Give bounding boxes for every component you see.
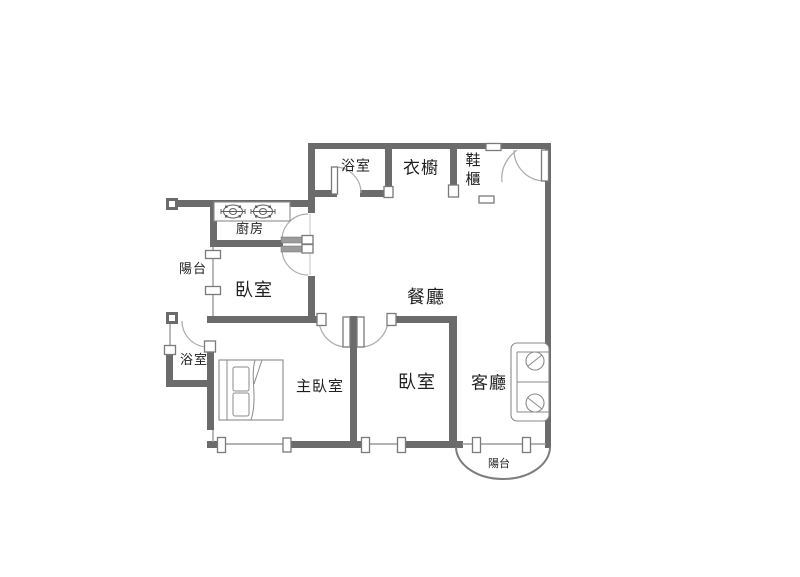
wall [207, 348, 214, 430]
window-post [165, 346, 176, 355]
door-arc-entrance [514, 150, 545, 181]
room-label-shoe-cabinet-line1: 鞋 [465, 151, 480, 170]
wall [450, 143, 457, 187]
bed-icon [219, 360, 283, 420]
room-label-shoe-cabinet-line2: 櫃 [465, 170, 480, 189]
room-label-kitchen: 廚房 [236, 222, 264, 236]
window-post [398, 438, 406, 453]
wall [207, 316, 323, 323]
window-post [206, 251, 221, 259]
wall [385, 143, 392, 190]
floor-plan-canvas: 浴室 衣櫥 鞋 櫃 廚房 陽台 臥室 餐廳 浴室 主臥室 臥室 客廳 陽台 [0, 0, 800, 577]
wall [404, 441, 463, 448]
room-label-master-bedroom: 主臥室 [296, 379, 344, 396]
wall [449, 318, 457, 445]
stove-icon [214, 202, 290, 221]
window-post [283, 438, 291, 452]
door-leaf [542, 150, 549, 181]
wall [166, 380, 213, 387]
sofa-icon [511, 343, 549, 421]
room-label-shoe-cabinet: 鞋 櫃 [465, 151, 480, 189]
entry-threshold [486, 144, 501, 151]
window-post [218, 438, 226, 453]
room-label-bedroom-lower: 臥室 [398, 373, 436, 393]
room-label-bedroom-upper: 臥室 [235, 281, 273, 301]
wall-end-cap [168, 200, 177, 209]
wall [308, 143, 551, 149]
door-jamb [302, 236, 313, 245]
door-jamb [317, 314, 326, 326]
wall [308, 276, 315, 323]
room-label-dining: 餐廳 [407, 288, 445, 308]
room-label-balcony-left: 陽台 [179, 262, 207, 276]
room-label-bathroom-lower: 浴室 [180, 353, 208, 367]
window-post [523, 438, 531, 453]
room-label-balcony-bottom: 陽台 [488, 458, 510, 470]
door-leaf [332, 167, 338, 194]
room-label-living-room: 客廳 [471, 375, 507, 394]
wall [210, 240, 283, 247]
room-label-wardrobe: 衣櫥 [403, 160, 439, 179]
door-jamb [205, 341, 216, 352]
window-post [473, 438, 481, 453]
door-jamb [302, 245, 313, 254]
wall [290, 441, 363, 448]
shoe-cabinet-symbol [479, 196, 494, 203]
door-leaf [357, 317, 364, 347]
wall [391, 316, 457, 323]
door-jamb [384, 187, 393, 198]
room-label-bathroom-top: 浴室 [341, 158, 371, 173]
wall-end-cap [168, 314, 177, 323]
window-post [206, 287, 221, 295]
floor-plan-drawing [0, 0, 800, 577]
window-post [362, 438, 370, 453]
wall [350, 316, 357, 445]
door-leaf [343, 317, 350, 347]
door-jamb [387, 314, 396, 326]
wall [207, 441, 217, 448]
door-jamb [449, 185, 459, 197]
window-posts [165, 251, 531, 453]
